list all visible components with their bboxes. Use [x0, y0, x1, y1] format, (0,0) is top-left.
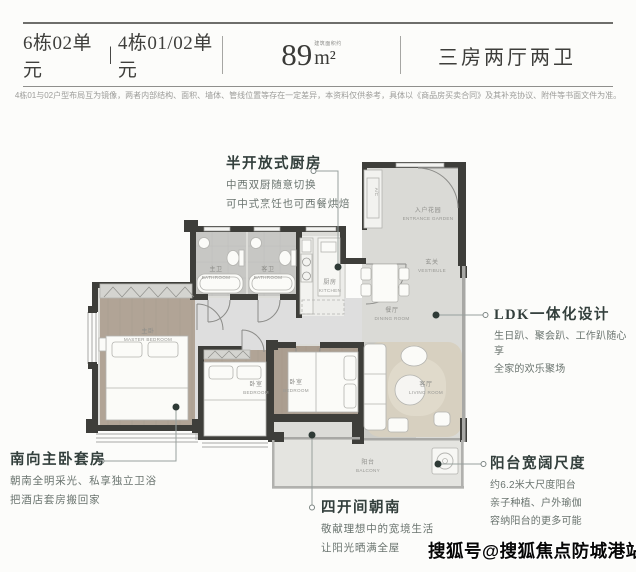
room-label-bath2-cn: 客卫 — [261, 265, 274, 273]
leader-dot-south — [309, 432, 316, 439]
leader-circle-ldk — [483, 313, 488, 318]
annotation-kitchen-line2: 可中式烹饪也可西餐烘焙 — [226, 197, 436, 213]
sohu-watermark: 搜狐号@搜狐焦点防城港站 — [428, 538, 636, 563]
room-label-master-en: MASTER BEDROOM — [124, 337, 172, 342]
room-label-balcony-en: BALCONY — [356, 468, 380, 473]
room-label-balcony-cn: 阳台 — [361, 458, 374, 466]
leader-dot-ldk — [433, 312, 440, 319]
leader-circle-balcony — [481, 462, 486, 467]
annotation-balcony: 阳台宽阔尺度 约6.2米大尺度阳台 亲子种植、户外瑜伽 容纳阳台的更多可能 — [490, 452, 635, 532]
leader-dot-balcony — [435, 461, 442, 468]
annotation-kitchen: 半开放式厨房 中西双厨随意切换 可中式烹饪也可西餐烘焙 — [226, 152, 436, 216]
room-label-bath1-en: BATHROOM — [202, 275, 231, 280]
annotation-balcony-line2: 亲子种植、户外瑜伽 — [490, 496, 635, 511]
room-label-living-en: LIVING ROOM — [409, 390, 443, 395]
annotation-balcony-title: 阳台宽阔尺度 — [490, 452, 635, 473]
leader-dot-kitchen — [335, 264, 342, 271]
room-label-bedroom2-cn: 卧室 — [249, 380, 262, 388]
annotation-ldk: LDK一体化设计 生日趴、聚会趴、工作趴随心享 全家的欢乐聚场 — [494, 303, 636, 380]
annotation-kitchen-line1: 中西双厨随意切换 — [226, 178, 436, 194]
annotation-ldk-title: LDK一体化设计 — [494, 303, 636, 324]
room-label-vestibule-cn: 玄关 — [425, 258, 438, 266]
room-label-master-cn: 主卧 — [141, 327, 154, 335]
floorplan-page: 6栋02单元 | 4栋01/02单元 89 建筑面积约 m² 三房两厅两卫 4栋… — [0, 0, 636, 572]
annotation-south-title: 四开间朝南 — [321, 496, 501, 517]
annotation-kitchen-title: 半开放式厨房 — [226, 152, 436, 173]
room-label-vestibule-en: VESTIBULE — [418, 268, 446, 273]
annotation-ldk-line1: 生日趴、聚会趴、工作趴随心享 — [494, 329, 636, 359]
annotation-master: 南向主卧套房 朝南全明采光、私享独立卫浴 把酒店套房搬回家 — [10, 448, 210, 512]
room-label-dining-cn: 餐厅 — [385, 306, 398, 314]
annotation-south-line1: 敬献理想中的宽境生活 — [321, 522, 501, 538]
room-label-kitchen-cn: 厨房 — [323, 278, 336, 286]
annotation-master-line1: 朝南全明采光、私享独立卫浴 — [10, 474, 210, 490]
washing-machine-icon — [432, 448, 458, 474]
annotation-master-title: 南向主卧套房 — [10, 448, 210, 469]
room-label-bath2-en: BATHROOM — [254, 275, 283, 280]
leader-circle-south — [310, 505, 315, 510]
room-label-bath1-cn: 主卫 — [209, 265, 222, 273]
room-label-dining-en: DINING ROOM — [375, 316, 410, 321]
room-label-living-cn: 客厅 — [419, 380, 432, 388]
room-label-bedroom2-en: BEDROOM — [243, 390, 269, 395]
leader-dot-master — [173, 404, 180, 411]
room-label-bedroom3-en: BEDROOM — [283, 388, 309, 393]
annotation-balcony-line3: 容纳阳台的更多可能 — [490, 514, 635, 529]
room-label-kitchen-en: KITCHEN — [319, 288, 341, 293]
annotation-balcony-line1: 约6.2米大尺度阳台 — [490, 478, 635, 493]
annotation-master-line2: 把酒店套房搬回家 — [10, 493, 210, 509]
room-label-bedroom3-cn: 卧室 — [289, 378, 302, 386]
room-label-entrance-en: ENTRANCE GARDEN — [403, 216, 454, 221]
annotation-ldk-line2: 全家的欢乐聚场 — [494, 362, 636, 377]
